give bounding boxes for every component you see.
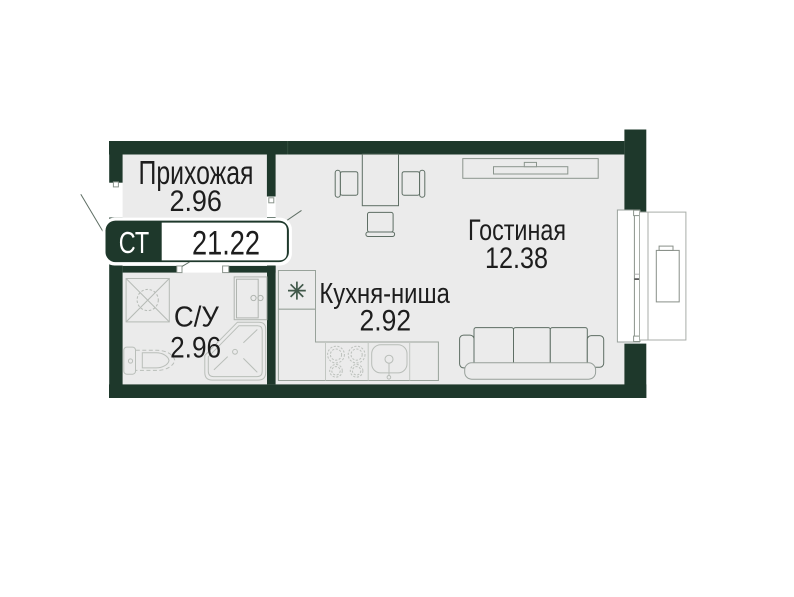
svg-text:12.38: 12.38 xyxy=(485,242,548,275)
svg-text:2.92: 2.92 xyxy=(360,305,412,338)
svg-text:2.96: 2.96 xyxy=(169,185,222,218)
svg-text:21.22: 21.22 xyxy=(192,225,260,263)
svg-text:С/У: С/У xyxy=(174,302,220,334)
svg-text:2.96: 2.96 xyxy=(170,331,221,364)
svg-text:СТ: СТ xyxy=(119,226,150,260)
